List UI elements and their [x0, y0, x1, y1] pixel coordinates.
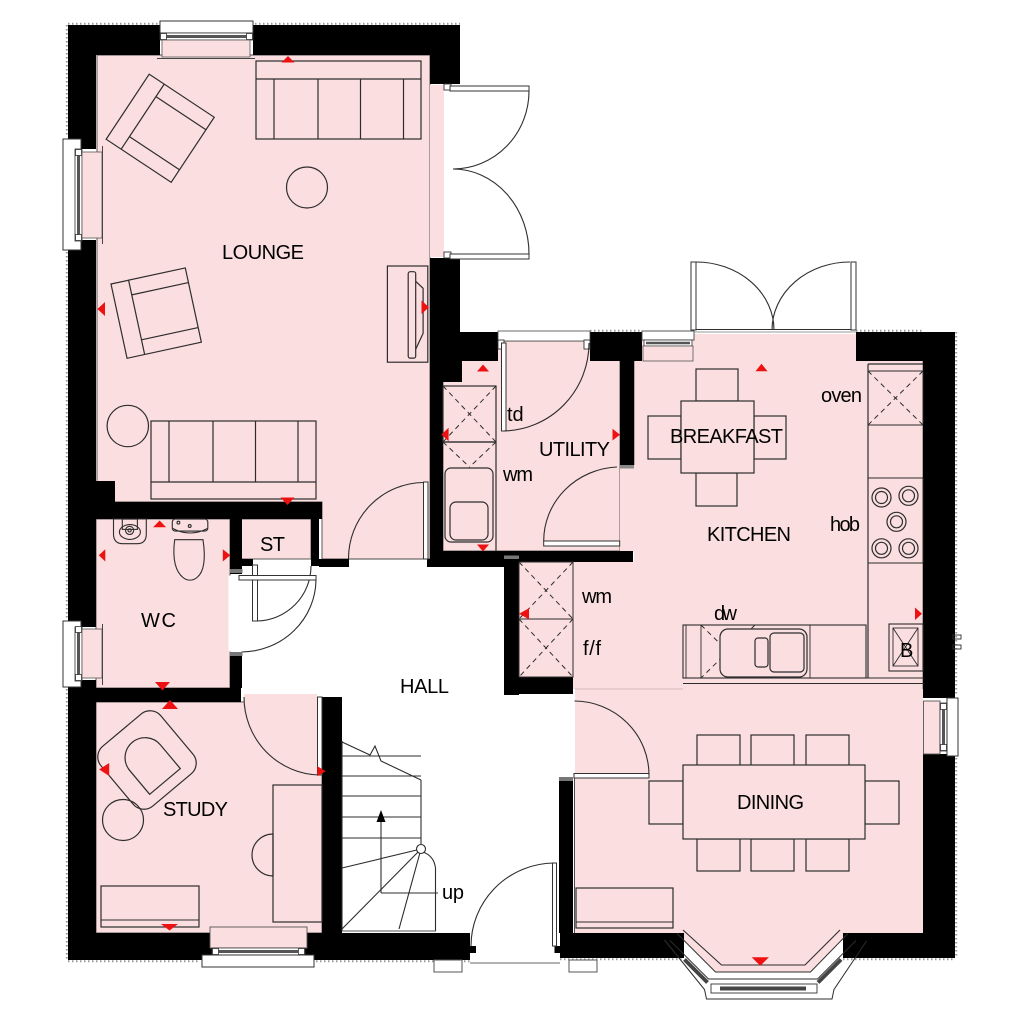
- svg-text:dw: dw: [714, 603, 738, 625]
- svg-text:LOUNGE: LOUNGE: [222, 242, 304, 264]
- svg-text:KITCHEN: KITCHEN: [707, 524, 791, 546]
- svg-text:HALL: HALL: [400, 676, 449, 698]
- svg-text:wm: wm: [581, 586, 612, 608]
- svg-text:oven: oven: [821, 385, 862, 407]
- svg-text:WC: WC: [141, 610, 176, 632]
- svg-text:hob: hob: [830, 514, 860, 536]
- svg-text:ST: ST: [260, 534, 285, 556]
- svg-text:up: up: [442, 882, 464, 904]
- svg-text:wm: wm: [502, 464, 533, 486]
- svg-text:STUDY: STUDY: [163, 799, 228, 821]
- svg-text:f/f: f/f: [583, 638, 601, 660]
- svg-text:B: B: [900, 640, 913, 662]
- svg-text:UTILITY: UTILITY: [539, 439, 610, 461]
- svg-text:DINING: DINING: [737, 792, 804, 814]
- svg-text:td: td: [507, 404, 524, 426]
- svg-text:BREAKFAST: BREAKFAST: [670, 426, 783, 448]
